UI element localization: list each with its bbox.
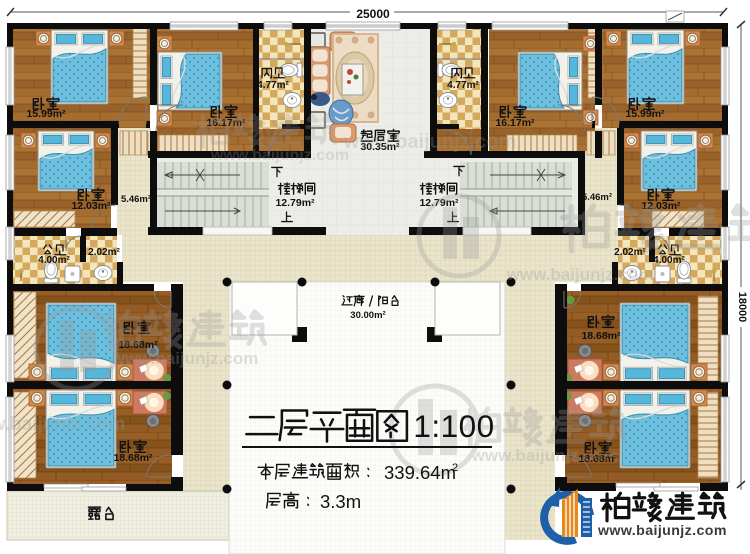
svg-text:4.77m²: 4.77m²	[447, 80, 479, 91]
svg-text:5.46m²: 5.46m²	[582, 192, 612, 203]
svg-text:339.64m: 339.64m	[384, 462, 456, 483]
svg-text:15.99m²: 15.99m²	[26, 108, 66, 120]
svg-text:18.68m²: 18.68m²	[581, 330, 621, 342]
svg-text:4.00m²: 4.00m²	[653, 255, 685, 266]
svg-text:30.00m²: 30.00m²	[350, 310, 385, 321]
svg-text:www.baijunjz.com: www.baijunjz.com	[471, 446, 619, 465]
svg-text:www.baijunjz.com: www.baijunjz.com	[506, 265, 654, 284]
svg-text:2.02m²: 2.02m²	[88, 247, 120, 258]
svg-text:16.17m²: 16.17m²	[495, 117, 535, 129]
svg-text:3.3m: 3.3m	[320, 491, 361, 512]
svg-text:4.00m²: 4.00m²	[38, 255, 70, 266]
svg-text:18000: 18000	[736, 292, 748, 323]
svg-text:2: 2	[452, 462, 458, 474]
svg-text:12.03m²: 12.03m²	[71, 200, 111, 212]
svg-text:15.99m²: 15.99m²	[625, 108, 665, 120]
svg-text:18.68m²: 18.68m²	[113, 452, 153, 464]
svg-text:25000: 25000	[356, 7, 390, 21]
svg-text:www.baijunjz.com: www.baijunjz.com	[343, 131, 517, 153]
svg-text:5.46m²: 5.46m²	[121, 194, 151, 205]
svg-text:2.02m²: 2.02m²	[614, 247, 646, 258]
svg-text:www.baijunjz.com: www.baijunjz.com	[210, 147, 349, 164]
svg-text:www.baijunjz.com: www.baijunjz.com	[597, 523, 727, 539]
svg-text:www.baijunjz.com: www.baijunjz.com	[111, 349, 259, 368]
svg-text:12.79m²: 12.79m²	[275, 197, 315, 209]
svg-text:w.baijunjz.com: w.baijunjz.com	[0, 414, 125, 435]
svg-text:1:100: 1:100	[413, 408, 494, 444]
svg-text:4.77m²: 4.77m²	[257, 80, 289, 91]
